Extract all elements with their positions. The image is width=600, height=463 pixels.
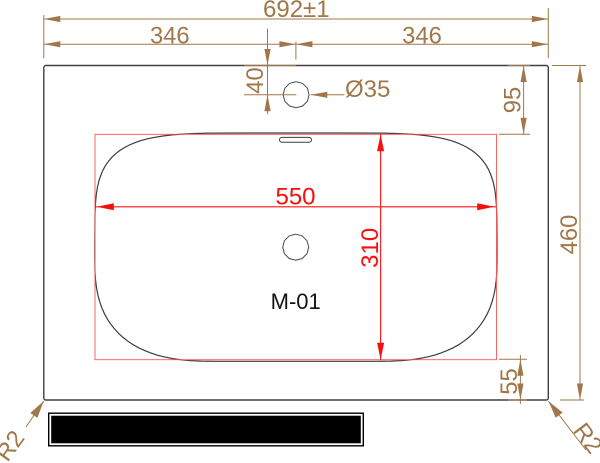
svg-text:310: 310 xyxy=(357,228,384,268)
svg-text:692±1: 692±1 xyxy=(263,0,330,23)
svg-text:550: 550 xyxy=(275,183,315,210)
svg-text:95: 95 xyxy=(500,87,527,113)
svg-text:M-01: M-01 xyxy=(271,289,321,314)
svg-text:R2: R2 xyxy=(567,418,600,459)
svg-text:R2: R2 xyxy=(0,426,30,463)
svg-text:346: 346 xyxy=(150,22,190,49)
svg-text:55: 55 xyxy=(496,368,523,394)
svg-text:346: 346 xyxy=(402,22,442,49)
svg-text:Ø35: Ø35 xyxy=(345,76,390,103)
svg-text:40: 40 xyxy=(242,67,269,93)
svg-text:460: 460 xyxy=(556,215,583,255)
